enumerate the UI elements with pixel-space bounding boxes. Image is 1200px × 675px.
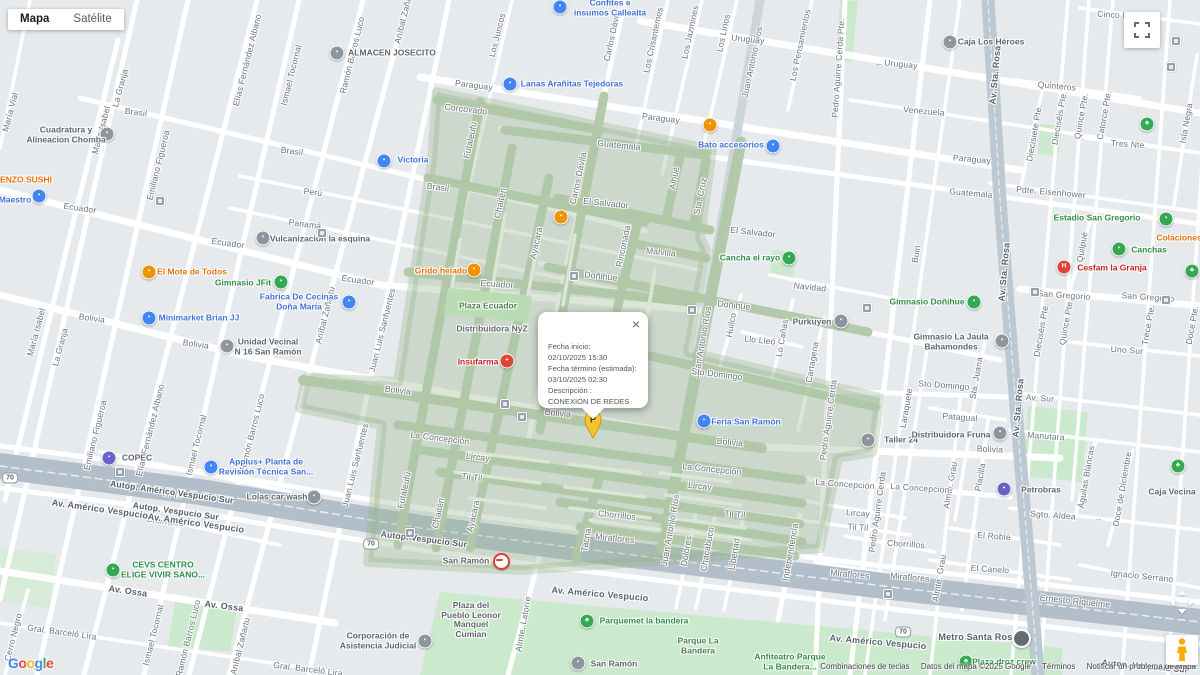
keyboard-shortcuts-link[interactable]: Combinaciones de teclas [820, 662, 909, 671]
poi-corporaci-n-de-asistencia-judi-label[interactable]: Corporación de Asistencia Judicial [340, 632, 417, 651]
street-label: Perú [303, 186, 323, 198]
poi-maestro-label[interactable]: Maestro [0, 195, 31, 205]
poi-vulcanizaci-n-la-esquina-icon[interactable]: ▪ [256, 231, 271, 246]
poi-purkuyen-label[interactable]: Purkuyen [793, 317, 832, 327]
map-canvas[interactable]: María VialMaría IsabelMaría IsabelLa Gra… [0, 0, 1200, 675]
poi-cesfam-la-granja-icon[interactable]: H [1057, 260, 1072, 275]
poi-estadio-san-gregorio-icon[interactable]: ▪ [1159, 212, 1174, 227]
poi-caja-vecina-label[interactable]: Caja Vecina [1148, 487, 1195, 497]
poi-bato-accesorios-label[interactable]: Bato accesorios [698, 140, 764, 150]
oneway-arrow-icon: ← [875, 58, 884, 68]
transit-stop-icon[interactable] [115, 467, 125, 477]
poi-cesfam-la-granja-label[interactable]: Cesfam la Granja [1077, 263, 1146, 273]
transit-stop-icon[interactable] [569, 271, 579, 281]
poi-cevs-centro-elige-vivir-sano-icon[interactable]: ▪ [106, 563, 121, 578]
poi-plaza-ecuador-label[interactable]: Plaza Ecuador [459, 301, 517, 311]
poi-canchas-icon[interactable]: ▪ [1112, 242, 1127, 257]
poi-confites-e-insumos-callealta-label[interactable]: Confites e insumos Callealta [574, 0, 646, 18]
poi-el-mote-de-todos-label[interactable]: El Mote de Todos [157, 267, 227, 277]
poi-victoria-icon[interactable]: ▪ [377, 154, 392, 169]
poi-canchas-label[interactable]: Canchas [1131, 245, 1166, 255]
info-line-fecha-termino-value: 03/10/2025 02:30 [548, 374, 637, 385]
google-logo-letter: o [26, 655, 34, 671]
poi-purkuyen-icon[interactable]: ▪ [834, 314, 849, 329]
transit-stop-icon[interactable] [687, 305, 697, 315]
poi-lanas-ara-itas-tejedoras-label[interactable]: Lanas Arañitas Tejedoras [521, 79, 624, 89]
info-line-fecha-termino-label: Fecha término (estimada): [548, 363, 637, 374]
oneway-arrow-icon: → [91, 476, 100, 486]
metro-san-ramon-icon[interactable] [493, 553, 510, 570]
transit-stop-icon[interactable] [1030, 287, 1040, 297]
poi-caja-los-h-roes-label[interactable]: Caja Los Héroes [958, 37, 1025, 47]
poi-victoria-label[interactable]: Victoria [397, 155, 428, 165]
poi-gimnasio-do-ihue-icon[interactable]: ▪ [967, 295, 982, 310]
poi-poi-icon[interactable]: ▪ [554, 210, 569, 225]
transit-stop-icon[interactable] [155, 196, 165, 206]
info-line-descripcion-value: CONEXIÓN DE REDES [548, 396, 637, 407]
poi-petrobras-label[interactable]: Petrobras [1021, 485, 1061, 495]
poi-applus-planta-de-revisi-n-t-cn-icon[interactable]: ▪ [204, 460, 219, 475]
poi-poi-icon[interactable]: ♣ [1171, 459, 1186, 474]
google-logo-letter: g [35, 655, 43, 671]
poi-poi-icon[interactable]: ♣ [1185, 264, 1200, 279]
terms-link[interactable]: Términos [1042, 662, 1075, 671]
poi-plaza-del-pueblo-leonor-manque-label[interactable]: Plaza del Pueblo Leonor Manquel Cumian [441, 601, 501, 639]
poi-confites-e-insumos-callealta-icon[interactable]: ▪ [553, 0, 568, 15]
poi-feria-san-ram-n-label[interactable]: Feria San Ramón [711, 417, 780, 427]
poi-san-ram-n-icon[interactable]: ▪ [571, 656, 586, 671]
google-logo-letter: G [8, 655, 18, 671]
poi-copec-icon[interactable]: ▪ [102, 451, 117, 466]
street-label: Metro Santa Rosa [938, 632, 1017, 642]
poi-distribuidora-fruna-label[interactable]: Distribuidora Fruna [912, 430, 991, 440]
pegman-icon [1175, 638, 1189, 662]
satellite-button[interactable]: Satélite [61, 9, 123, 30]
poi-insufarma-label[interactable]: Insufarma [458, 357, 499, 367]
map-button[interactable]: Mapa [8, 9, 61, 30]
poi-minimarket-brian-jj-label[interactable]: Minimarket Brian JJ [159, 313, 240, 323]
poi-petrobras-icon[interactable]: ▪ [997, 482, 1012, 497]
poi-enzo-sushi-label[interactable]: ENZO SUSHI [0, 175, 52, 185]
poi-fabrica-de-cecinas-do-a-mar-a-label[interactable]: Fabrica De Cecinas Doña María [260, 293, 338, 312]
street-label: Lircay [846, 507, 871, 519]
map-type-control: Mapa Satélite [8, 9, 124, 30]
poi-gimnasio-la-jaula-bahamondes-label[interactable]: Gimnasio La Jaula Bahamondes [913, 333, 988, 352]
transit-stop-icon[interactable] [405, 528, 415, 538]
poi-lolas-car-wash-label[interactable]: Lolas car wash [247, 492, 308, 502]
transit-stop-icon[interactable] [317, 228, 327, 238]
pegman-control[interactable] [1166, 635, 1198, 665]
poi-parquemet-la-bandera-icon[interactable]: ♣ [580, 614, 595, 629]
poi-taller-24-icon[interactable]: ▪ [861, 433, 876, 448]
poi-unidad-vecinal-n-16-san-ram-n-label[interactable]: Unidad Vecinal N 16 San Ramón [234, 338, 301, 357]
transit-stop-icon[interactable] [500, 399, 510, 409]
poi-el-mote-de-todos-icon[interactable]: ▪ [142, 265, 157, 280]
oneway-arrow-icon: → [1094, 513, 1103, 523]
street-label: Bolivia [977, 443, 1004, 454]
poi-gimnasio-do-ihue-label[interactable]: Gimnasio Doñihue [889, 297, 964, 307]
poi-bato-accesorios-icon[interactable]: ▪ [766, 139, 781, 154]
poi-san-ram-n-label[interactable]: San Ramón [443, 556, 490, 566]
info-window-body: Fecha inicio: 02/10/2025 15:30 Fecha tér… [548, 341, 637, 407]
info-line-descripcion-label: Descripción : [548, 385, 637, 396]
poi-gimnasio-la-jaula-bahamondes-icon[interactable]: ▪ [995, 334, 1010, 349]
poi-insufarma-icon[interactable]: + [500, 354, 515, 369]
oneway-arrow-icon: → [754, 570, 763, 580]
poi-almacen-josecito-icon[interactable]: ▪ [330, 46, 345, 61]
poi-distribuidora-nyz-label[interactable]: Distribuidora NyZ [456, 324, 527, 334]
fullscreen-icon [1134, 22, 1150, 38]
poi-cevs-centro-elige-vivir-sano-label[interactable]: CEVS CENTRO ELIGE VIVIR SANO... [121, 561, 205, 580]
close-icon[interactable]: × [632, 317, 640, 331]
route-shield: 70 [2, 473, 18, 484]
google-logo[interactable]: Google [8, 655, 53, 671]
fullscreen-button[interactable] [1124, 12, 1160, 48]
info-line-fecha-inicio-label: Fecha inicio: [548, 341, 637, 352]
poi-parquemet-la-bandera-label[interactable]: Parquemet la bandera [600, 616, 689, 626]
route-shield: 70 [363, 539, 379, 550]
street-label: Til Til [724, 508, 746, 520]
map-data-text: Datos del mapa ©2025 Google [921, 662, 1031, 671]
poi-unidad-vecinal-n-16-san-ram-n-icon[interactable]: ▪ [220, 339, 235, 354]
poi-cancha-el-rayo-label[interactable]: Cancha el rayo [720, 253, 780, 263]
poi-gimnasio-jfit-label[interactable]: Gimnasio JFit [215, 278, 271, 288]
poi-grido-helado-icon[interactable]: ▪ [467, 263, 482, 278]
poi-caja-los-h-roes-icon[interactable]: ▪ [943, 35, 958, 50]
poi-colaciones-label[interactable]: Colaciones [1156, 233, 1200, 243]
transit-stop-icon[interactable] [1166, 62, 1176, 72]
poi-lolas-car-wash-icon[interactable]: ▪ [307, 490, 322, 505]
route-shield: 70 [895, 627, 911, 638]
transit-stop-icon[interactable] [517, 412, 527, 422]
poi-corporaci-n-de-asistencia-judi-icon[interactable]: ▪ [418, 634, 433, 649]
poi-san-ram-n-label[interactable]: San Ramón [591, 659, 638, 669]
poi-cuadratura-y-alineacion-chomba-label[interactable]: Cuadratura y Alineacion Chomba [26, 126, 105, 145]
transit-stop-icon[interactable] [1161, 295, 1171, 305]
poi-feria-san-ram-n-icon[interactable]: ▪ [697, 414, 712, 429]
poi-distribuidora-fruna-icon[interactable]: ▪ [993, 426, 1008, 441]
poi-lanas-ara-itas-tejedoras-icon[interactable]: ▪ [503, 77, 518, 92]
street-label: Til Til [847, 521, 869, 532]
metro-santa-rosa-icon[interactable] [1012, 629, 1031, 648]
poi-minimarket-brian-jj-icon[interactable]: ▪ [142, 311, 157, 326]
poi-poi-icon[interactable]: ♣ [1140, 117, 1155, 132]
poi-copec-label[interactable]: COPEC [122, 453, 152, 463]
google-logo-letter: e [46, 655, 53, 671]
poi-parque-la-bandera-label[interactable]: Parque La Bandera [677, 637, 718, 656]
poi-almacen-josecito-label[interactable]: ALMACEN JOSECITO [348, 48, 436, 58]
pan-control[interactable] [1166, 586, 1198, 618]
info-window: × Fecha inicio: 02/10/2025 15:30 Fecha t… [538, 312, 648, 408]
poi-poi-icon[interactable]: ▪ [703, 118, 718, 133]
attribution-bar: Combinaciones de teclas Datos del mapa ©… [811, 662, 1196, 671]
transit-stop-icon[interactable] [1171, 36, 1181, 46]
transit-stop-icon[interactable] [862, 303, 872, 313]
poi-maestro-icon[interactable]: ▪ [32, 189, 47, 204]
poi-cancha-el-rayo-icon[interactable]: ▪ [782, 251, 797, 266]
poi-grido-helado-label[interactable]: Grido helado [415, 266, 467, 276]
street-label: Av. Sur [1025, 392, 1054, 404]
poi-fabrica-de-cecinas-do-a-mar-a-icon[interactable]: ▪ [342, 295, 357, 310]
transit-stop-icon[interactable] [883, 589, 893, 599]
poi-gimnasio-jfit-icon[interactable]: ▪ [274, 275, 289, 290]
poi-applus-planta-de-revisi-n-t-cn-label[interactable]: Applus+ Planta de Revisión Técnica San..… [219, 458, 313, 477]
poi-estadio-san-gregorio-label[interactable]: Estadio San Gregorio [1054, 213, 1141, 223]
info-line-fecha-inicio-value: 02/10/2025 15:30 [548, 352, 637, 363]
